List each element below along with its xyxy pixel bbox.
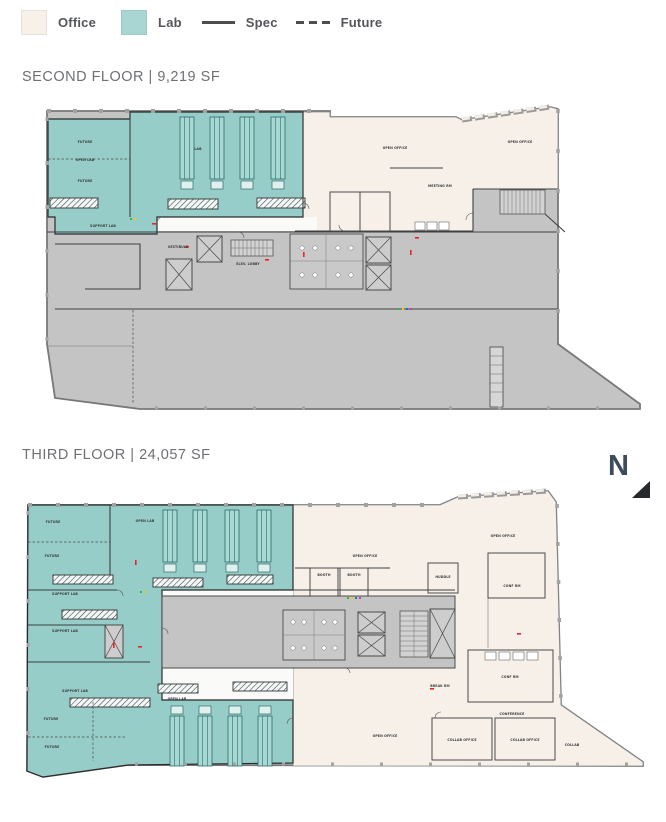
lab-zone: [48, 112, 303, 234]
room-label: VESTIBULE: [168, 245, 188, 249]
room-label: OPEN OFFICE: [508, 140, 533, 144]
legend-item-lab: Lab: [121, 10, 202, 35]
future-dash-icon: [296, 21, 330, 24]
room-label: BOOTH: [317, 573, 330, 577]
room-label: MEETING RM: [428, 184, 452, 188]
elevator: [105, 625, 123, 658]
room-label: CONF RM: [501, 675, 518, 679]
corridor: [157, 217, 317, 231]
room-label: FUTURE: [44, 717, 59, 721]
stair: [500, 190, 545, 214]
elevator: [366, 237, 391, 263]
legend-label-lab: Lab: [158, 15, 182, 30]
room-label: CONF RM: [503, 584, 520, 588]
elevator: [358, 635, 385, 656]
room-label: SUPPORT LAB: [62, 689, 88, 693]
elevator: [366, 265, 391, 290]
room-label: OPEN LAB: [168, 697, 187, 701]
third-floor-plan: FUTUREOPEN LABFUTURESUPPORT LABSUPPORT L…: [15, 478, 655, 788]
elevator: [430, 609, 455, 658]
office-swatch: [21, 10, 47, 35]
room-label: SUPPORT LAB: [52, 629, 78, 633]
legend: Office Lab Spec Future: [21, 10, 382, 35]
elevator: [358, 612, 385, 633]
legend-label-office: Office: [58, 15, 96, 30]
stair: [400, 611, 428, 657]
spec-line-icon: [202, 21, 235, 24]
room-label: CONFERENCE: [500, 712, 525, 716]
room-label: OPEN LAB: [136, 519, 155, 523]
north-label: N: [608, 450, 629, 483]
corridor: [162, 590, 293, 596]
legend-item-office: Office: [21, 10, 121, 35]
north-arrow-icon: [629, 477, 653, 501]
room-label: FUTURE: [46, 520, 61, 524]
room-label: HUDDLE: [435, 575, 450, 579]
elevator: [166, 259, 192, 290]
north-indicator: N: [606, 450, 656, 506]
room-label: FUTURE: [78, 179, 93, 183]
elevator: [197, 236, 222, 262]
room-label: SUPPORT LAB: [90, 224, 116, 228]
room-label: SUPPORT LAB: [52, 592, 78, 596]
room-label: OPEN LAB: [76, 158, 95, 162]
room-label: OPEN OFFICE: [491, 534, 516, 538]
restrooms: [290, 234, 363, 289]
room-label: ELEV. LOBBY: [236, 262, 260, 266]
room-label: FUTURE: [78, 140, 93, 144]
room-label: OPEN OFFICE: [383, 146, 408, 150]
page: { "legend": { "items": [ {"label": "Offi…: [0, 0, 666, 822]
legend-item-spec: Spec: [202, 15, 296, 30]
shaft: [490, 347, 503, 407]
room-label: BREAK RM: [430, 684, 450, 688]
lab-swatch: [121, 10, 147, 35]
stair: [231, 240, 273, 256]
legend-label-future: Future: [341, 15, 383, 30]
hatch-zones: [50, 198, 305, 209]
third-floor-title: THIRD FLOOR | 24,057 SF: [22, 447, 211, 463]
second-floor-title: SECOND FLOOR | 9,219 SF: [22, 69, 220, 85]
room-label: LAB: [194, 147, 202, 151]
room-label: OPEN OFFICE: [353, 554, 378, 558]
room-label: FUTURE: [45, 554, 60, 558]
room-label: COLLAB OFFICE: [510, 738, 539, 742]
legend-label-spec: Spec: [246, 15, 278, 30]
legend-item-future: Future: [296, 15, 383, 30]
room-label: COLLAB OFFICE: [447, 738, 476, 742]
room-label: FUTURE: [45, 745, 60, 749]
room-label: COLLAB: [565, 743, 580, 747]
room-label: BOOTH: [347, 573, 360, 577]
room-label: OPEN OFFICE: [373, 734, 398, 738]
second-floor-plan: FUTUREOPEN LABFUTURELABSUPPORT LABVESTIB…: [35, 97, 647, 429]
restrooms: [283, 610, 345, 660]
